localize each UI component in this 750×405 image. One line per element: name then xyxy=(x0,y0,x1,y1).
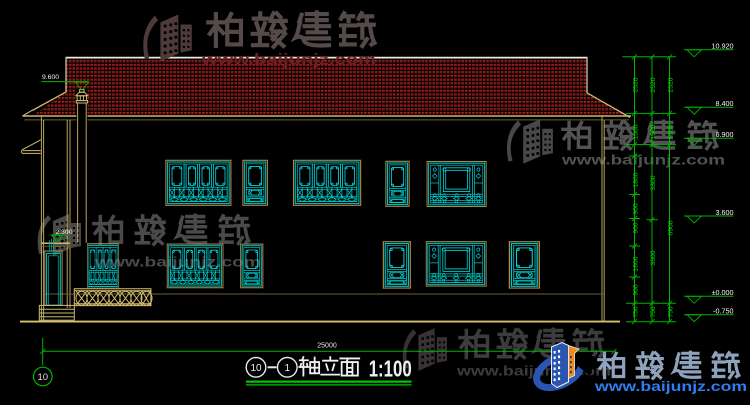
svg-text:750: 750 xyxy=(633,306,640,318)
svg-text:1:100: 1:100 xyxy=(369,356,412,382)
svg-text:10.920: 10.920 xyxy=(712,42,734,51)
svg-text:±0.000: ±0.000 xyxy=(712,288,734,297)
svg-text:2.300: 2.300 xyxy=(56,229,73,236)
svg-text:1800: 1800 xyxy=(633,172,640,187)
svg-text:3.600: 3.600 xyxy=(716,208,734,217)
svg-text:6.900: 6.900 xyxy=(716,130,734,139)
svg-text:10: 10 xyxy=(250,363,262,374)
svg-text:900: 900 xyxy=(633,284,640,296)
svg-text:750: 750 xyxy=(650,306,657,318)
svg-text:900: 900 xyxy=(633,222,640,234)
svg-text:8.400: 8.400 xyxy=(716,99,734,108)
svg-text:3600: 3600 xyxy=(650,250,657,265)
svg-text:2520: 2520 xyxy=(668,77,675,92)
svg-text:6900: 6900 xyxy=(668,220,675,235)
svg-text:-0.750: -0.750 xyxy=(713,307,733,316)
svg-text:1800: 1800 xyxy=(633,256,640,271)
svg-text:2520: 2520 xyxy=(650,77,657,92)
svg-text:www.baijunjz.com: www.baijunjz.com xyxy=(594,379,747,394)
svg-text:www.baijunjz.com: www.baijunjz.com xyxy=(201,52,376,69)
svg-text:1500: 1500 xyxy=(633,124,640,139)
svg-text:1500: 1500 xyxy=(650,124,657,139)
svg-text:1: 1 xyxy=(285,363,291,374)
svg-text:9.600: 9.600 xyxy=(42,74,59,81)
svg-text:750: 750 xyxy=(668,306,675,318)
svg-text:2520: 2520 xyxy=(633,77,640,92)
svg-text:3300: 3300 xyxy=(650,175,657,190)
svg-text:www.baijunjz.com: www.baijunjz.com xyxy=(561,153,725,168)
svg-text:10: 10 xyxy=(38,372,49,383)
svg-text:900: 900 xyxy=(633,203,640,215)
svg-text:1500: 1500 xyxy=(668,124,675,139)
svg-text:25000: 25000 xyxy=(317,343,337,350)
